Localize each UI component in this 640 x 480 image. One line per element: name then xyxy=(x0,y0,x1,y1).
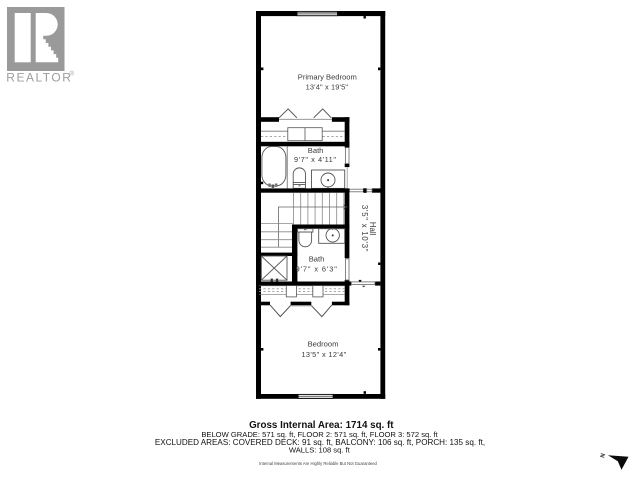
svg-text:®: ® xyxy=(70,71,75,78)
svg-text:Bedroom: Bedroom xyxy=(308,340,339,349)
svg-text:Bath: Bath xyxy=(309,254,325,263)
svg-text:9'7" x 4'11": 9'7" x 4'11" xyxy=(294,155,336,164)
svg-text:REALTOR: REALTOR xyxy=(6,71,72,85)
svg-text:13'5" x 12'4": 13'5" x 12'4" xyxy=(301,350,346,359)
svg-text:Bath: Bath xyxy=(308,146,324,155)
svg-text:N: N xyxy=(598,452,605,458)
svg-text:Primary Bedroom: Primary Bedroom xyxy=(298,73,357,82)
svg-text:Internal Measurements Are High: Internal Measurements Are Highly Reliabl… xyxy=(259,461,377,466)
svg-text:WALLS: 108 sq. ft: WALLS: 108 sq. ft xyxy=(289,445,351,454)
svg-text:9'7" x 6'3": 9'7" x 6'3" xyxy=(296,265,338,274)
svg-text:13'4" x 19'5": 13'4" x 19'5" xyxy=(306,83,349,92)
svg-text:3'5" x 10'3": 3'5" x 10'3" xyxy=(360,205,369,252)
